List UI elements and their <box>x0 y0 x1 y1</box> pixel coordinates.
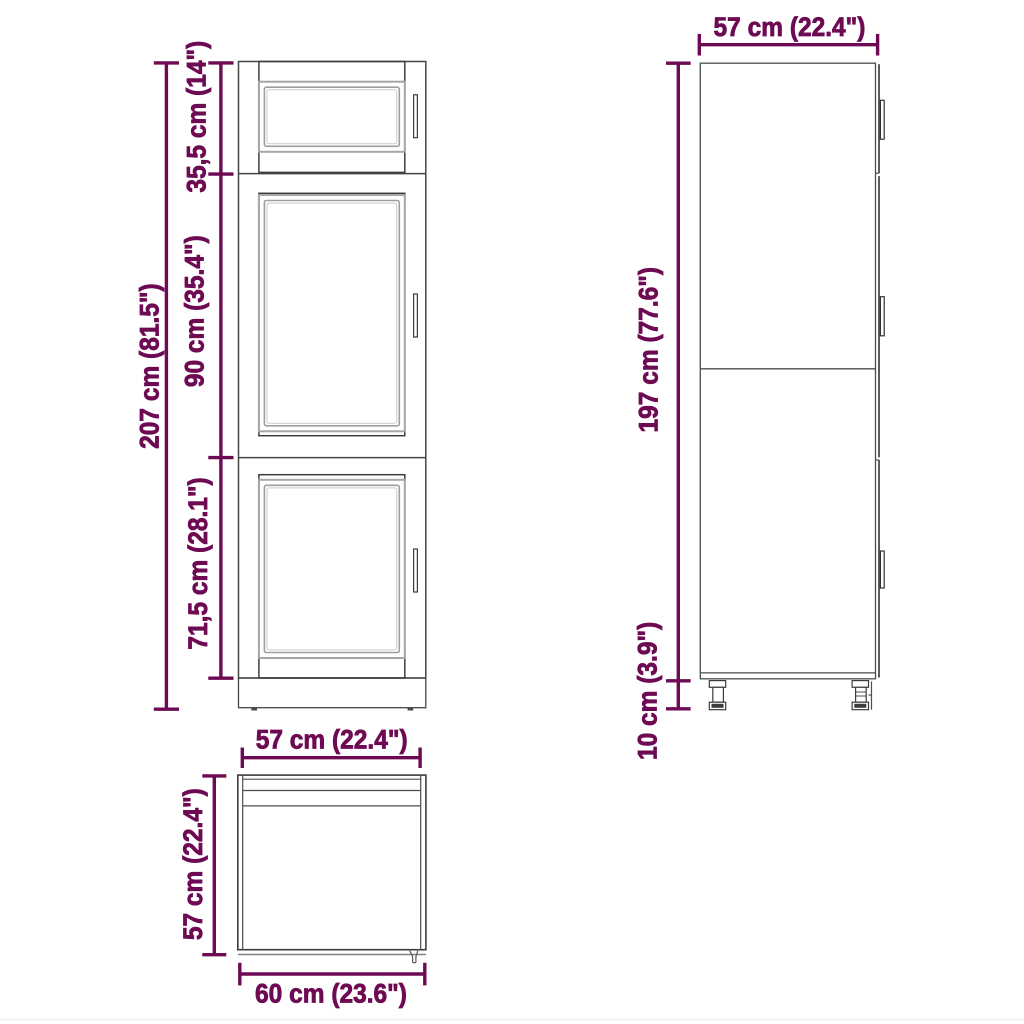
svg-text:35,5 cm (14"): 35,5 cm (14") <box>182 41 211 193</box>
svg-text:57 cm (22.4"): 57 cm (22.4") <box>256 725 408 754</box>
svg-text:197 cm (77.6"): 197 cm (77.6") <box>635 267 664 432</box>
svg-text:71,5 cm (28.1"): 71,5 cm (28.1") <box>184 477 213 649</box>
svg-text:10 cm (3.9"): 10 cm (3.9") <box>633 622 662 760</box>
svg-text:57 cm (22.4"): 57 cm (22.4") <box>179 788 208 940</box>
svg-text:60 cm (23.6"): 60 cm (23.6") <box>255 980 407 1009</box>
svg-text:90 cm (35.4"): 90 cm (35.4") <box>180 235 209 387</box>
svg-text:207 cm (81.5"): 207 cm (81.5") <box>136 283 165 448</box>
svg-text:57 cm (22.4"): 57 cm (22.4") <box>714 13 866 42</box>
